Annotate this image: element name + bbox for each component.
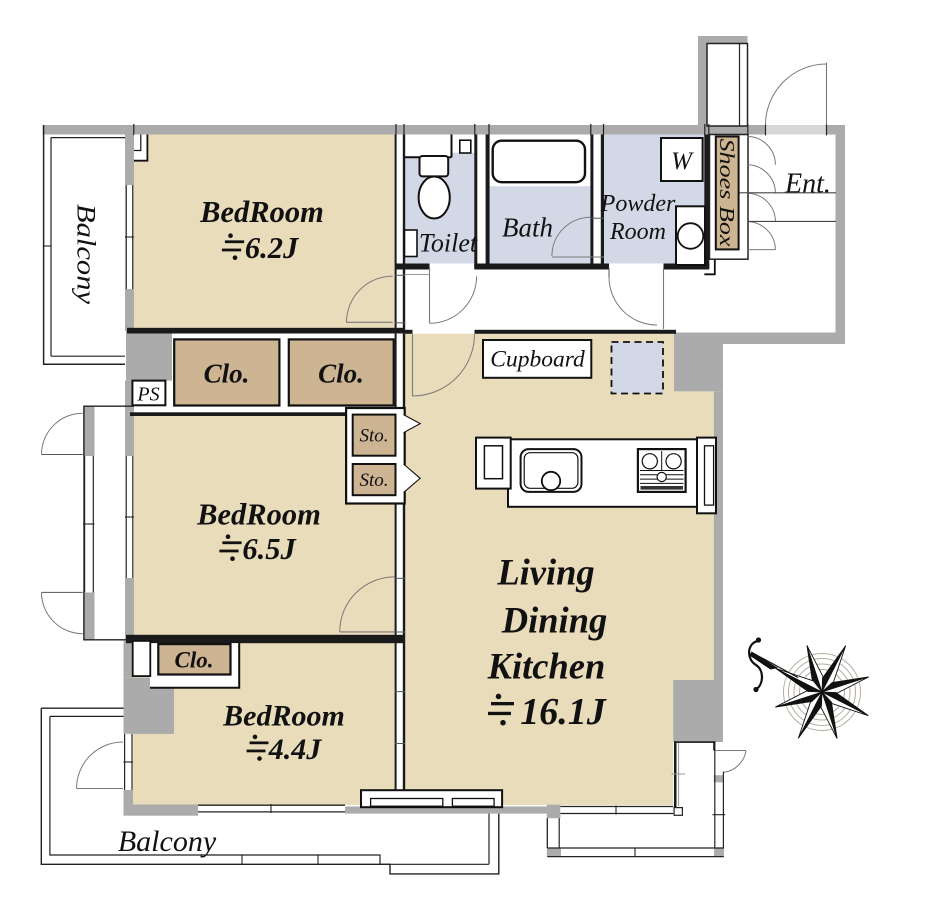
svg-text:4.4J: 4.4J bbox=[268, 733, 323, 766]
svg-text:Clo.: Clo. bbox=[175, 648, 214, 673]
svg-text:Bath: Bath bbox=[502, 212, 553, 242]
svg-text:BedRoom: BedRoom bbox=[222, 700, 345, 733]
svg-text:PS: PS bbox=[136, 384, 159, 406]
svg-text:Toilet: Toilet bbox=[419, 229, 478, 258]
svg-text:Sto.: Sto. bbox=[359, 470, 388, 491]
svg-text:BedRoom: BedRoom bbox=[199, 195, 324, 229]
svg-text:Kitchen: Kitchen bbox=[487, 645, 606, 686]
svg-text:Living: Living bbox=[496, 551, 594, 592]
svg-text:Dining: Dining bbox=[501, 599, 608, 640]
svg-text:BedRoom: BedRoom bbox=[196, 498, 321, 532]
svg-text:Room: Room bbox=[609, 219, 666, 245]
svg-text:Balcony: Balcony bbox=[72, 204, 102, 304]
svg-text:16.1J: 16.1J bbox=[520, 691, 607, 733]
svg-text:Clo.: Clo. bbox=[318, 358, 364, 388]
svg-text:Balcony: Balcony bbox=[118, 825, 217, 858]
svg-text:W: W bbox=[671, 148, 694, 175]
svg-text:Shoes Box: Shoes Box bbox=[715, 139, 739, 248]
svg-text:6.2J: 6.2J bbox=[245, 231, 300, 265]
svg-text:Clo.: Clo. bbox=[204, 358, 250, 388]
svg-text:Powder: Powder bbox=[600, 191, 676, 217]
svg-text:Ent.: Ent. bbox=[784, 168, 831, 199]
svg-text:6.5J: 6.5J bbox=[242, 532, 297, 566]
svg-text:Cupboard: Cupboard bbox=[490, 347, 585, 373]
svg-text:Sto.: Sto. bbox=[359, 426, 388, 447]
